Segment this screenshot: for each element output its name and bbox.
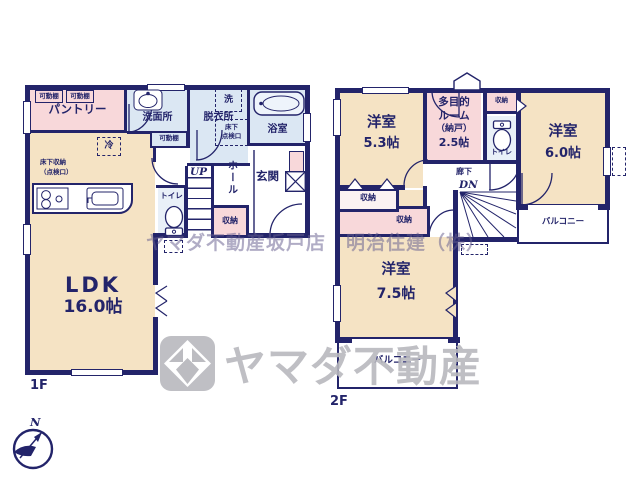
room-label-multi-2: ルーム <box>427 110 481 122</box>
stairs-up-label: UP <box>190 166 207 178</box>
floorplan-canvas: パントリー 可動棚 可動棚 可動棚 洗面所 脱衣所 浴室 冷 洗 床下収納 （点… <box>0 0 640 480</box>
wall <box>483 111 520 114</box>
door-arc <box>404 160 428 186</box>
storage-top-label: 収納 <box>487 97 516 104</box>
door-leaf <box>156 286 167 301</box>
wall <box>247 143 310 146</box>
room-label-washroom: 洗面所 <box>127 112 188 124</box>
wall <box>25 130 127 133</box>
shelf-label: 可動棚 <box>150 135 188 142</box>
genkan-step-line <box>253 150 255 233</box>
watermark-brand-text: ヤマダ不動産 <box>224 333 482 394</box>
room-label-west2: 洋室 <box>521 124 605 141</box>
wall <box>156 185 187 188</box>
compass-north-label: N <box>30 416 41 429</box>
room-label-hall: ホール <box>225 160 237 196</box>
wall <box>153 317 158 372</box>
room-label-dressing: 脱衣所 <box>189 112 248 124</box>
genkan-cabinet <box>289 151 304 172</box>
bay-window <box>453 72 481 90</box>
door-arc <box>152 158 178 184</box>
hatch-label-2: 点検口 <box>215 133 248 140</box>
window <box>71 369 123 376</box>
room-label-bath: 浴室 <box>249 124 306 136</box>
storage-label-1f: 収納 <box>211 216 249 225</box>
bathtub-icon <box>253 91 305 116</box>
room-size-ldk: 16.0帖 <box>32 298 154 318</box>
hatch-label-1: 床下 <box>215 124 248 131</box>
underfloor-label-1: 床下収納 <box>40 159 66 166</box>
room-label-west1: 洋室 <box>340 115 423 132</box>
room-label-pantry: パントリー <box>30 103 125 116</box>
kitchen-sink-icon <box>86 187 124 210</box>
storage-a-label: 収納 <box>337 193 399 202</box>
room-label-multi-3: （納戸） <box>427 124 481 134</box>
compass-icon <box>10 426 58 474</box>
vanity-sink-icon <box>133 89 163 111</box>
floor-label-2f: 2F <box>330 394 348 409</box>
storage-b-label: 収納 <box>380 215 428 224</box>
closet-door-leaf <box>379 179 395 189</box>
window <box>362 87 409 94</box>
watermark-brand: ヤマダ不動産 <box>160 333 482 394</box>
room-label-ldk: LDK <box>32 273 154 297</box>
exterior-mark <box>612 147 626 176</box>
balcony-right-label: バルコニー <box>517 218 609 228</box>
room-label-toilet-1f: トイレ <box>157 192 186 201</box>
room-label-west3: 洋室 <box>337 262 455 279</box>
shelf-label: 可動棚 <box>66 93 94 100</box>
room-label-entrance: 玄関 <box>256 170 279 183</box>
watermark-office-line: ヤマダ不動産坂戸店 明治住建（株） <box>146 228 486 255</box>
corridor-label: 廊下 <box>456 167 472 176</box>
room-size-west2: 6.0帖 <box>521 147 605 162</box>
room-size-west1: 5.3帖 <box>340 137 423 152</box>
door-arc <box>489 164 519 190</box>
door-arc <box>521 173 552 205</box>
entrance-door-icon <box>285 171 306 192</box>
window-leaf <box>446 303 456 318</box>
shelf-label: 可動棚 <box>35 93 63 100</box>
stairs-down-label: DN <box>459 179 478 191</box>
room-size-west3: 7.5帖 <box>337 286 455 302</box>
washer-label: 洗 <box>215 95 242 105</box>
underfloor-label-2: （点検口） <box>40 169 73 176</box>
stove-icon <box>36 187 69 210</box>
yamada-logo-icon <box>160 336 215 391</box>
floor-label-1f: 1F <box>30 378 48 393</box>
closet-door-leaf <box>347 179 363 189</box>
fridge-label: 冷 <box>97 141 121 151</box>
wall <box>305 85 310 238</box>
room-size-multi: 2.5帖 <box>427 137 481 150</box>
door-leaf <box>156 301 167 316</box>
door-leaf <box>517 99 526 113</box>
room-label-toilet-2f: トイレ <box>486 148 517 156</box>
room-label-multi-1: 多目的 <box>427 96 481 108</box>
window <box>23 224 31 255</box>
